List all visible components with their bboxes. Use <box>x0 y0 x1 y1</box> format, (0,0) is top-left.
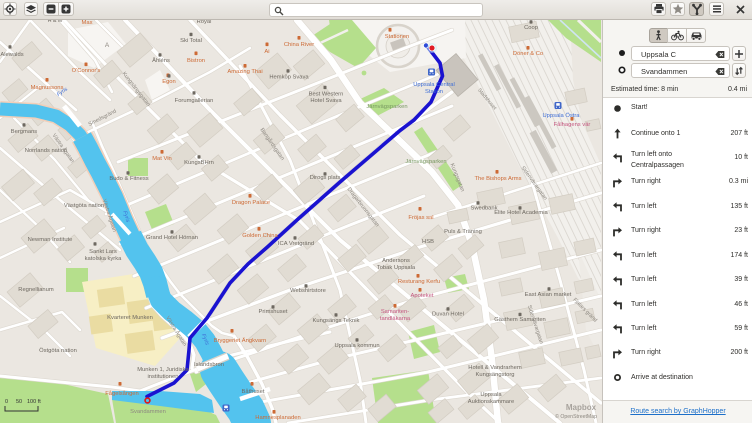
svg-text:Andersons: Andersons <box>382 258 410 264</box>
svg-text:Hotel Svava: Hotel Svava <box>310 98 342 104</box>
svg-text:Samariten-: Samariten- <box>381 309 409 315</box>
svg-text:Mat Vin: Mat Vin <box>152 156 172 162</box>
svg-text:Resturang Kerfu: Resturang Kerfu <box>398 279 440 285</box>
svg-text:Islandsbron: Islandsbron <box>194 362 224 368</box>
svg-text:KungsBHrn: KungsBHrn <box>184 160 214 166</box>
svg-text:H & M: H & M <box>48 20 62 24</box>
svg-text:Järnvägsparken: Järnvägsparken <box>405 159 446 165</box>
svg-text:Auktionskammare: Auktionskammare <box>468 399 514 405</box>
svg-text:Munken 1, Juridiska: Munken 1, Juridiska <box>137 367 189 373</box>
svg-text:Hotell & Vandrarhem: Hotell & Vandrarhem <box>468 365 522 371</box>
svg-text:Webshirtstore: Webshirtstore <box>290 288 326 294</box>
svg-text:Svandammen: Svandammen <box>130 409 166 415</box>
svg-text:© OpenStreetMap: © OpenStreetMap <box>555 413 597 420</box>
svg-text:Egon: Egon <box>162 79 176 85</box>
svg-text:A: A <box>105 42 110 49</box>
svg-text:Coop: Coop <box>524 25 538 31</box>
svg-text:Fågelsången: Fågelsången <box>105 390 139 397</box>
svg-text:Max: Max <box>82 20 93 26</box>
svg-text:Uppsala: Uppsala <box>480 392 502 398</box>
svg-text:Järnvägsparken: Järnvägsparken <box>366 104 407 110</box>
svg-text:katolska kyrka: katolska kyrka <box>85 256 123 262</box>
svg-text:ICA Vretgränd: ICA Vretgränd <box>278 241 314 247</box>
svg-text:Hamnesplanaden: Hamnesplanaden <box>255 415 300 421</box>
svg-text:Regnellianum: Regnellianum <box>18 287 54 293</box>
svg-text:Station: Station <box>425 89 443 95</box>
svg-text:Forumgallerian: Forumgallerian <box>175 98 214 104</box>
svg-text:China River: China River <box>284 42 314 48</box>
svg-text:Ski Total: Ski Total <box>180 38 202 44</box>
svg-text:Primshuset: Primshuset <box>259 309 288 315</box>
svg-text:Golden China: Golden China <box>242 233 278 239</box>
svg-text:Royal: Royal <box>197 20 212 25</box>
svg-text:The Bishops Arms: The Bishops Arms <box>474 176 521 182</box>
svg-text:Östgöta nation: Östgöta nation <box>39 347 77 354</box>
svg-text:Newman Institute: Newman Institute <box>28 237 73 243</box>
svg-text:Fålhagens vär: Fålhagens vär <box>554 121 591 128</box>
svg-text:Puls & Träning: Puls & Träning <box>444 229 482 235</box>
svg-text:Bergmans: Bergmans <box>11 129 38 135</box>
svg-text:Ai: Ai <box>264 49 269 55</box>
svg-text:Västgöta nation: Västgöta nation <box>64 203 104 209</box>
svg-text:Kungsängs Teknik: Kungsängs Teknik <box>313 318 360 324</box>
svg-text:HSB: HSB <box>422 239 434 245</box>
svg-text:Bryggeriet Ängkvarn: Bryggeriet Ängkvarn <box>214 337 267 344</box>
svg-text:Bistron: Bistron <box>187 58 205 64</box>
svg-text:Kvarteret Munken: Kvarteret Munken <box>107 315 153 321</box>
svg-text:100 ft: 100 ft <box>27 399 41 405</box>
svg-text:Tobak Uppsala: Tobak Uppsala <box>377 265 416 271</box>
svg-text:Elite Hotel Academia: Elite Hotel Academia <box>494 210 548 216</box>
svg-text:50: 50 <box>16 399 22 405</box>
svg-text:Apoteket: Apoteket <box>411 293 434 299</box>
svg-text:Hemköp Svava: Hemköp Svava <box>269 74 309 80</box>
svg-text:Fröjas sal: Fröjas sal <box>408 215 433 221</box>
svg-text:Grand Hotel Hörnan: Grand Hotel Hörnan <box>146 235 198 241</box>
svg-text:Duvan Hotel: Duvan Hotel <box>432 312 464 318</box>
svg-text:Alewalds: Alewalds <box>0 52 23 58</box>
svg-text:Kungsängstorg: Kungsängstorg <box>476 372 515 378</box>
svg-text:Uppsala Central: Uppsala Central <box>413 82 455 88</box>
svg-text:Mapbox: Mapbox <box>566 403 597 412</box>
svg-text:Sankt Lars: Sankt Lars <box>89 249 117 255</box>
svg-text:0: 0 <box>5 399 8 405</box>
svg-text:Dirogs plats: Dirogs plats <box>310 175 341 181</box>
svg-text:Båthuset: Båthuset <box>242 388 265 395</box>
svg-text:Amazing Thai: Amazing Thai <box>227 69 262 75</box>
svg-text:Uppsala kommun: Uppsala kommun <box>334 343 379 349</box>
svg-text:Budo & Fitness: Budo & Fitness <box>109 176 148 182</box>
svg-text:tandläkarna: tandläkarna <box>380 316 411 322</box>
svg-text:Best Western: Best Western <box>309 92 344 98</box>
svg-text:East Asian market: East Asian market <box>525 292 572 298</box>
svg-text:Uppsala Östra: Uppsala Östra <box>542 112 580 119</box>
svg-text:O'Connor's: O'Connor's <box>72 68 101 74</box>
svg-text:Dragon Palace: Dragon Palace <box>232 200 270 206</box>
svg-text:Döner & Co: Döner & Co <box>513 51 543 57</box>
svg-text:Stationen: Stationen <box>385 34 410 40</box>
svg-text:Åhléns: Åhléns <box>152 57 170 64</box>
svg-text:institutionen: institutionen <box>148 374 179 380</box>
